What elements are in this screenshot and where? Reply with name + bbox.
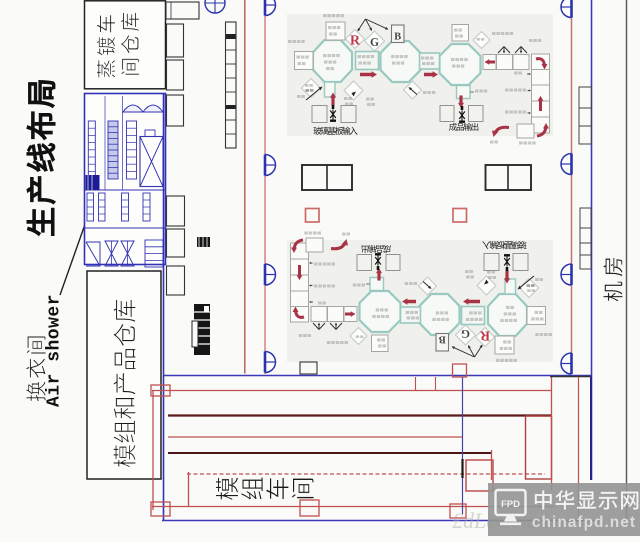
svg-text:Air shower: Air shower bbox=[45, 294, 65, 407]
svg-text:chinafpd.net: chinafpd.net bbox=[532, 514, 636, 531]
svg-text:FPD: FPD bbox=[501, 499, 520, 510]
